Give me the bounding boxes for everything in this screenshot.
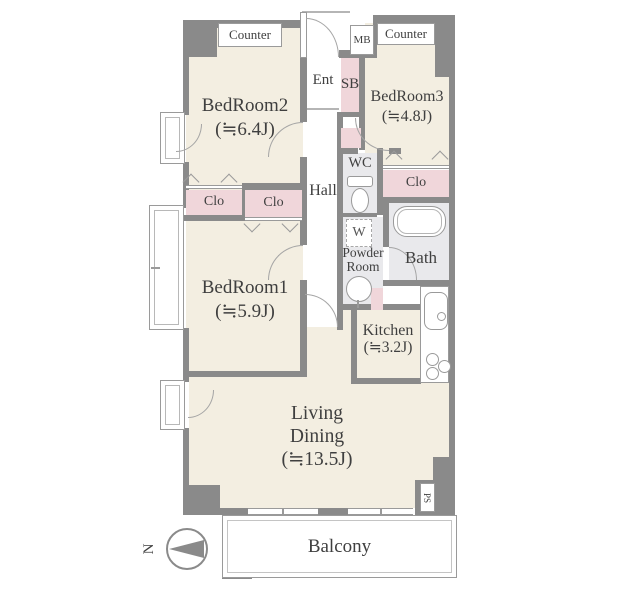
toilet-bowl-icon <box>351 188 369 213</box>
hall-name: Hall <box>309 183 337 200</box>
entrance-name: Ent <box>313 73 334 89</box>
powder-sink-tap <box>357 300 359 308</box>
entrance-outline <box>302 11 350 13</box>
room-label-living-1: Living <box>237 403 397 426</box>
washer-space: W <box>346 219 372 247</box>
room-size-kitchen: (≒3.2J) <box>353 340 423 357</box>
stove-burner-icon <box>426 353 439 366</box>
powder-line2: Room <box>346 260 379 274</box>
bedroom2-size: (≒6.4J) <box>215 120 275 140</box>
room-size-bedroom3: (≒4.8J) <box>365 108 449 126</box>
closet-label: Clo <box>263 196 283 211</box>
room-size-bedroom2: (≒6.4J) <box>183 119 307 141</box>
stove-burner-icon <box>426 367 439 380</box>
window-living-inner <box>165 385 180 425</box>
living-line2: Dining <box>290 427 344 447</box>
kitchen-size: (≒3.2J) <box>364 340 413 356</box>
balcony-name: Balcony <box>308 537 371 557</box>
north-letter: N <box>142 544 158 555</box>
wall-powder-bath-divider <box>383 197 389 247</box>
washer-label: W <box>352 225 365 241</box>
toilet-tank-icon <box>347 176 373 187</box>
wall-closet1-bottom <box>183 215 245 221</box>
window-tick <box>380 508 382 515</box>
room-label-powder-2: Room <box>339 260 387 274</box>
bedroom3-size: (≒4.8J) <box>382 109 432 126</box>
closet-bedroom3: Clo <box>383 170 449 197</box>
kitchen-name: Kitchen <box>363 323 414 340</box>
kitchen-sink-icon <box>424 292 448 330</box>
wall-right <box>449 15 455 515</box>
pipe-space: PS <box>420 483 435 512</box>
meter-box: MB <box>350 25 374 55</box>
kitchen-faucet-icon <box>437 312 446 321</box>
floor-plan: SB Clo Clo Clo Counter Counter MB PS W N… <box>0 0 640 600</box>
bedroom3-name: BedRoom3 <box>371 89 444 106</box>
stove-burner-icon <box>438 360 451 373</box>
closet-bedroom1: Clo <box>245 190 302 217</box>
shoe-box: SB <box>341 58 359 112</box>
wall-bedroom1-bottom <box>183 371 307 377</box>
entrance-step-line <box>307 108 339 110</box>
wall-bottom-segment <box>318 508 348 515</box>
bath-name: Bath <box>405 249 437 267</box>
room-label-bedroom3: BedRoom3 <box>365 88 449 106</box>
room-label-kitchen: Kitchen <box>355 322 421 340</box>
wall-bath-top <box>377 197 449 203</box>
powder-line1: Powder <box>342 246 383 260</box>
room-label-bedroom1: BedRoom1 <box>183 277 307 299</box>
counter-label: Counter <box>385 26 427 42</box>
room-label-powder-1: Powder <box>339 246 387 260</box>
bathtub-inner-line <box>397 209 442 234</box>
wall-left-segment <box>183 428 189 485</box>
powder-sink-icon <box>346 276 372 302</box>
room-label-living-2: Dining <box>237 426 397 449</box>
bedroom2-name: BedRoom2 <box>202 96 289 116</box>
wall-wc-powder-divider <box>343 213 377 217</box>
room-label-bath: Bath <box>395 248 447 268</box>
bedroom1-size: (≒5.9J) <box>215 302 275 322</box>
pillar-bottom-left <box>183 485 220 515</box>
counter-label: Counter <box>229 27 271 43</box>
closet-label: Clo <box>204 195 224 210</box>
wc-name: WC <box>348 156 371 171</box>
living-line1: Living <box>291 404 343 424</box>
closet-bedroom2: Clo <box>186 190 242 215</box>
counter-bedroom3: Counter <box>377 23 435 45</box>
meter-box-label: MB <box>353 34 370 46</box>
living-size: (≒13.5J) <box>281 450 352 470</box>
room-size-living: (≒13.5J) <box>237 449 397 472</box>
powder-shelf <box>371 288 383 310</box>
room-label-balcony: Balcony <box>229 535 450 559</box>
wall-closet2-top <box>242 183 307 190</box>
bedroom1-name: BedRoom1 <box>202 278 289 298</box>
counter-bedroom2: Counter <box>218 23 282 47</box>
room-size-bedroom1: (≒5.9J) <box>183 301 307 323</box>
window-tick <box>151 267 160 269</box>
compass-north-label: N <box>141 538 159 560</box>
compass-needle-icon <box>169 540 204 558</box>
room-label-bedroom2: BedRoom2 <box>183 95 307 117</box>
pipe-space-label: PS <box>422 492 432 502</box>
room-label-entrance: Ent <box>303 72 343 90</box>
wall-kitchen-bottom <box>351 378 421 384</box>
room-label-wc: WC <box>343 156 377 172</box>
closet-label: Clo <box>406 176 426 191</box>
window-tick <box>282 508 284 515</box>
room-label-hall: Hall <box>301 182 345 200</box>
wall-bottom-segment <box>220 508 248 515</box>
entrance-door-arc <box>306 18 339 57</box>
shoe-box-label: SB <box>341 77 359 93</box>
